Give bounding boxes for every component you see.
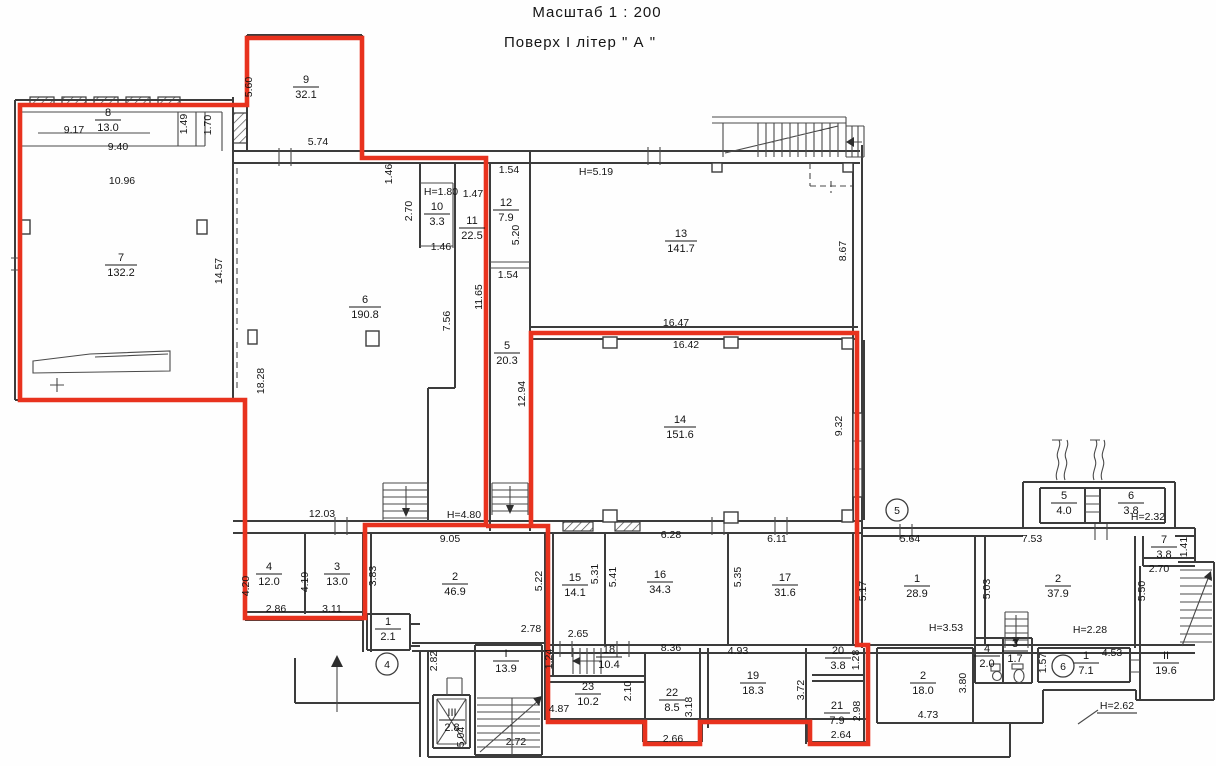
svg-text:21: 21 [831,700,843,712]
svg-text:132.2: 132.2 [107,267,135,279]
dimension-label: 1.47 [463,188,484,200]
svg-text:8.5: 8.5 [664,702,679,714]
svg-text:8: 8 [105,107,111,119]
dimension-label: 12.94 [516,381,528,407]
dimension-label: 2.70 [403,201,415,222]
svg-text:II: II [1163,650,1169,662]
room-label: 813.0 [95,107,121,134]
dimension-label: 5.17 [857,581,869,602]
svg-text:3: 3 [334,561,340,573]
room-label: 14151.6 [664,414,696,441]
room-label: 313.0 [324,561,350,588]
svg-text:28.9: 28.9 [906,588,927,600]
dimension-label: 1.54 [498,269,519,281]
svg-text:22: 22 [666,687,678,699]
dimension-label: 2.86 [266,603,287,615]
room-label: 31.7 [1002,638,1028,665]
dimension-label: 3.80 [957,673,969,694]
svg-text:3.3: 3.3 [429,216,444,228]
room-label: 1634.3 [647,569,673,596]
dimension-label: 1.41 [1178,537,1190,558]
dimension-label: 2.10 [622,681,634,702]
dimension-label: 1.70 [202,115,214,136]
height-label: H=5.19 [579,166,613,178]
svg-text:13.0: 13.0 [97,122,118,134]
room-label: 54.0 [1051,490,1077,517]
svg-text:2.0: 2.0 [979,658,994,670]
wc-fixtures [991,664,1024,683]
dimension-label: 1.24 [543,649,555,670]
dimension-label: 1.28 [850,650,862,671]
room-label: 128.9 [904,573,930,600]
height-label: H=3.53 [929,622,963,634]
room-label: 7132.2 [105,252,137,279]
room-label: 12.1 [375,616,401,643]
dimension-label: 11.65 [473,284,485,310]
svg-text:13.0: 13.0 [326,576,347,588]
circled-ref: 6 [1052,655,1074,677]
svg-text:6: 6 [362,294,368,306]
highlight-outline [20,38,868,744]
svg-text:4: 4 [984,643,990,655]
svg-text:31.6: 31.6 [774,587,795,599]
height-label: H=1.80 [424,186,458,198]
svg-text:3: 3 [1012,638,1018,650]
room-label: I13.9 [493,648,519,675]
svg-text:9: 9 [303,74,309,86]
dimension-label: 4.93 [728,645,749,657]
svg-text:10.4: 10.4 [598,659,619,671]
plan-title-floor: Поверх І літер " А " [504,34,656,51]
svg-text:6: 6 [1128,490,1134,502]
svg-text:7: 7 [118,252,124,264]
svg-text:34.3: 34.3 [649,584,670,596]
svg-text:7.1: 7.1 [1078,665,1093,677]
svg-text:1: 1 [914,573,920,585]
svg-text:5: 5 [1061,490,1067,502]
dimension-label: 2.78 [521,623,542,635]
dimension-label: 8.67 [837,241,849,262]
dimension-label: 5.50 [1136,581,1148,602]
svg-text:2: 2 [1055,573,1061,585]
svg-text:18.0: 18.0 [912,685,933,697]
svg-text:190.8: 190.8 [351,309,379,321]
red-outline-path [20,38,486,618]
dimension-label: 5.35 [732,567,744,588]
height-label: H=2.62 [1100,700,1134,712]
svg-text:5: 5 [894,505,900,517]
height-label: H=2.28 [1073,624,1107,636]
room-label: 2310.2 [575,681,601,708]
dimension-label: 10.96 [109,175,135,187]
room-label: 412.0 [256,561,282,588]
dimension-label: 3.18 [683,697,695,718]
dimension-label: 5.41 [607,567,619,588]
svg-text:4.0: 4.0 [1056,505,1071,517]
room-label: 103.3 [424,201,450,228]
svg-text:14: 14 [674,414,686,426]
svg-text:141.7: 141.7 [667,243,695,255]
dimension-label: 5.74 [308,136,329,148]
dimension-label: 5.04 [455,727,467,748]
dimension-label: 4.87 [549,703,570,715]
walls-dashed [237,163,852,392]
dimension-label: 5.03 [981,579,993,600]
dimension-label: 2.98 [851,701,863,722]
svg-text:3.8: 3.8 [1156,549,1171,561]
svg-text:2: 2 [452,571,458,583]
svg-text:19: 19 [747,670,759,682]
dimension-label: 14.57 [213,258,225,284]
dimension-label: 2.72 [506,736,527,748]
svg-text:16: 16 [654,569,666,581]
dimension-label: 5.20 [510,225,522,246]
dimension-label: 3.72 [795,680,807,701]
svg-text:32.1: 32.1 [295,89,316,101]
dimension-label: 7.56 [441,311,453,332]
room-label: 520.3 [494,340,520,367]
dimension-label: 1.54 [499,164,520,176]
floor-plan-page: Масштаб 1 : 200 Поверх І літер " А " [0,0,1216,766]
svg-text:1: 1 [1083,650,1089,662]
height-label: H=4.80 [447,509,481,521]
svg-text:7: 7 [1161,534,1167,546]
dimension-label: 1.46 [383,164,395,185]
svg-text:20: 20 [832,645,844,657]
room-label: 6190.8 [349,294,381,321]
dimension-label: 2.65 [568,628,589,640]
svg-text:7.9: 7.9 [829,715,844,727]
room-label: 203.8 [825,645,851,672]
dimension-label: 1.46 [431,241,452,253]
room-label: 1810.4 [596,644,622,671]
height-label: H=2.32 [1131,511,1165,523]
svg-text:4: 4 [266,561,272,573]
dimension-label: 9.17 [64,124,85,136]
dimension-label: 2.70 [1149,563,1170,575]
room-label: 127.9 [493,197,519,224]
dimension-label: 4.19 [299,572,311,593]
svg-text:7.9: 7.9 [498,212,513,224]
room-label: 228.5 [659,687,685,714]
dimension-label: 18.28 [255,368,267,394]
svg-text:I: I [504,648,507,660]
svg-text:1: 1 [385,616,391,628]
dimension-label: 5.31 [589,564,601,585]
dimension-label: 8.36 [661,642,682,654]
dimension-label: 9.05 [440,533,461,545]
svg-text:20.3: 20.3 [496,355,517,367]
dimension-label: 2.64 [831,729,852,741]
dimension-label: 7.53 [1022,533,1043,545]
room-label: 42.0 [974,643,1000,670]
dimension-label: 9.40 [108,141,129,153]
room-label: 217.9 [824,700,850,727]
dimension-label: 16.47 [663,317,689,329]
svg-text:12: 12 [500,197,512,209]
dimension-label: 6.28 [661,529,682,541]
dimension-label: 4.20 [240,576,252,597]
room-label: 73.8 [1151,534,1177,561]
dimension-label: 3.11 [322,603,342,615]
room-label: 1918.3 [740,670,766,697]
svg-text:2.1: 2.1 [380,631,395,643]
svg-text:3.8: 3.8 [830,660,845,672]
svg-text:III: III [447,707,456,719]
dimension-label: 2.82 [428,651,440,672]
svg-text:19.6: 19.6 [1155,665,1176,677]
svg-text:13: 13 [675,228,687,240]
direction-arrows [331,137,1212,706]
room-label: 246.9 [442,571,468,598]
svg-text:46.9: 46.9 [444,586,465,598]
svg-text:18.3: 18.3 [742,685,763,697]
svg-text:22.5: 22.5 [461,230,482,242]
svg-text:15: 15 [569,572,581,584]
dimension-label: 12.03 [309,508,335,520]
dimension-label: 4.73 [918,709,939,721]
svg-text:18: 18 [603,644,615,656]
svg-text:12.0: 12.0 [258,576,279,588]
room-label: 932.1 [293,74,319,101]
room-label: II19.6 [1153,650,1179,677]
room-label: 1122.5 [459,215,485,242]
svg-text:14.1: 14.1 [564,587,585,599]
room-label: 1731.6 [772,572,798,599]
dimension-label: 5.60 [243,77,255,98]
svg-text:1.7: 1.7 [1007,653,1022,665]
dimension-label: 1.57 [1037,653,1049,674]
room-label: 13141.7 [665,228,697,255]
room-label: 237.9 [1045,573,1071,600]
svg-text:10: 10 [431,201,443,213]
room-label: 17.1 [1073,650,1099,677]
svg-text:13.9: 13.9 [495,663,516,675]
dimension-label: 5.22 [533,571,545,592]
dimension-label: 2.66 [663,733,684,745]
dimension-label: 16.42 [673,339,699,351]
room-label: 218.0 [910,670,936,697]
svg-text:17: 17 [779,572,791,584]
svg-text:37.9: 37.9 [1047,588,1068,600]
room-label: 1514.1 [562,572,588,599]
circled-ref: 4 [376,653,398,675]
svg-text:6: 6 [1060,661,1066,673]
floor-plan-canvas: Масштаб 1 : 200 Поверх І літер " А " [0,0,1216,766]
dimension-label: 3.83 [367,566,379,587]
svg-text:151.6: 151.6 [666,429,694,441]
dimension-label: 1.49 [178,114,190,135]
svg-text:11: 11 [466,215,477,227]
dimension-label: 4.53 [1102,647,1123,659]
plan-title-scale: Масштаб 1 : 200 [532,4,661,21]
svg-text:4: 4 [384,659,390,671]
dimension-label: 6.11 [767,533,787,545]
dimension-label: 9.32 [833,416,845,437]
svg-text:2: 2 [920,670,926,682]
circled-ref: 5 [886,499,908,521]
svg-text:23: 23 [582,681,594,693]
dimension-label: 5.64 [900,533,921,545]
svg-text:10.2: 10.2 [577,696,598,708]
svg-text:5: 5 [504,340,510,352]
